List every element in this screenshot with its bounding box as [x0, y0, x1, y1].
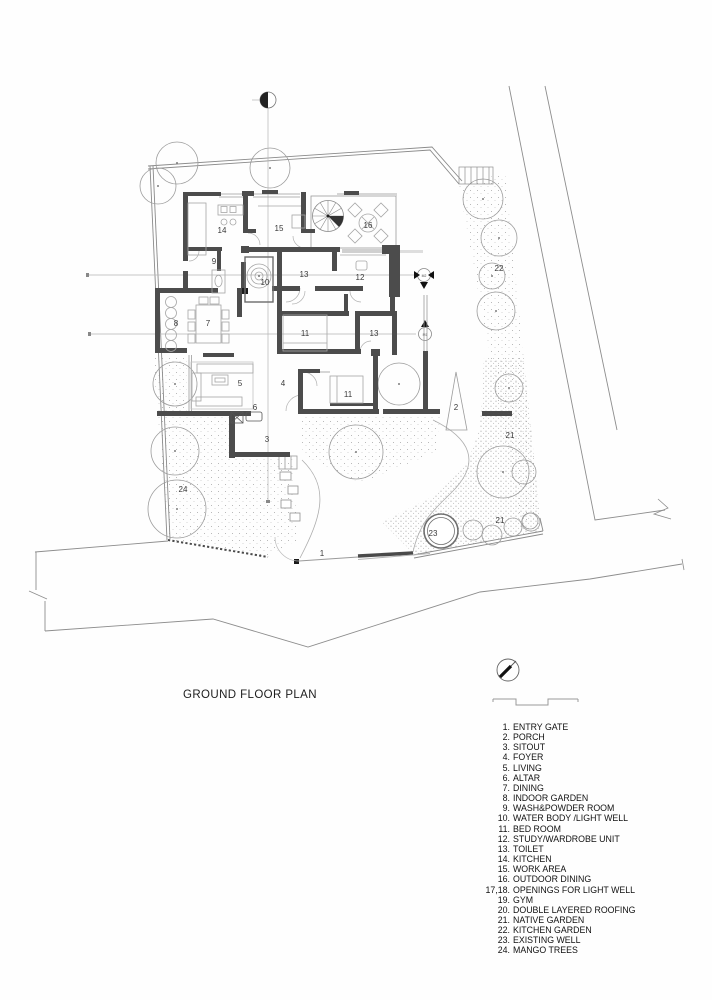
- plan-room-label: 13: [300, 270, 309, 279]
- legend-item: 2.PORCH: [482, 732, 697, 742]
- plan-room-label: 9: [212, 257, 217, 266]
- study-desk: [340, 255, 386, 270]
- legend-item-label: OPENINGS FOR LIGHT WELL: [513, 885, 635, 895]
- legend-item: 6.ALTAR: [482, 773, 697, 783]
- legend-item-number: 24.: [482, 945, 510, 955]
- legend-item-number: 15.: [482, 864, 510, 874]
- legend-item-number: 13.: [482, 844, 510, 854]
- legend-item: 23.EXISTING WELL: [482, 935, 697, 945]
- legend-item: 3.SITOUT: [482, 742, 697, 752]
- marker-m2-label: M2: [422, 274, 427, 278]
- legend-item-label: WATER BODY /LIGHT WELL: [513, 813, 628, 823]
- section-marker-top: [260, 92, 276, 108]
- legend-item: 8.INDOOR GARDEN: [482, 793, 697, 803]
- legend-item-number: 19.: [482, 895, 510, 905]
- north-arrow-icon: [497, 659, 519, 681]
- sofa-set: [191, 362, 253, 409]
- legend-item-number: 20.: [482, 905, 510, 915]
- plan-room-label: 21: [496, 516, 505, 525]
- legend-item-number: 23.: [482, 935, 510, 945]
- plan-room-label: 1: [320, 549, 325, 558]
- drawing-title: GROUND FLOOR PLAN: [183, 689, 317, 701]
- legend-item-number: 22.: [482, 925, 510, 935]
- road-lines: [29, 86, 684, 647]
- plan-room-label: 22: [495, 264, 504, 273]
- legend-item-number: 21.: [482, 915, 510, 925]
- legend-item-label: OUTDOOR DINING: [513, 874, 591, 884]
- drawing-sheet: M2 M1: [0, 0, 712, 1000]
- legend-item-label: ALTAR: [513, 773, 540, 783]
- legend-item: 15.WORK AREA: [482, 864, 697, 874]
- legend-item-label: STUDY/WARDROBE UNIT: [513, 834, 620, 844]
- legend-item: 20.DOUBLE LAYERED ROOFING: [482, 905, 697, 915]
- legend-item: 7.DINING: [482, 783, 697, 793]
- legend-item: 21.NATIVE GARDEN: [482, 915, 697, 925]
- plan-room-label: 12: [356, 273, 365, 282]
- plan-room-label: 11: [344, 390, 353, 399]
- plan-room-label: 10: [261, 278, 270, 287]
- plan-room-label: 15: [275, 224, 284, 233]
- legend-item: 14.KITCHEN: [482, 854, 697, 864]
- plan-room-label: 23: [429, 529, 438, 538]
- legend-item-label: WORK AREA: [513, 864, 566, 874]
- plan-room-label: 16: [364, 221, 373, 230]
- plan-room-label: 2: [454, 403, 459, 412]
- furniture: [166, 201, 389, 424]
- plan-room-label: 11: [301, 329, 310, 338]
- legend-item-number: 11.: [482, 824, 510, 834]
- legend-item-number: 5.: [482, 763, 510, 773]
- section-marker-m1: M1: [419, 320, 432, 341]
- legend-item: 16.OUTDOOR DINING: [482, 874, 697, 884]
- legend-item-label: LIVING: [513, 763, 542, 773]
- legend-item-label: NATIVE GARDEN: [513, 915, 584, 925]
- plan-room-label: 5: [238, 379, 243, 388]
- plan-room-label: 7: [206, 319, 211, 328]
- scale-bar: [493, 699, 578, 705]
- plan-room-label: 24: [179, 485, 188, 494]
- plan-room-label: 3: [265, 435, 270, 444]
- legend-item-label: DINING: [513, 783, 544, 793]
- legend-item-number: 17,18.: [482, 885, 510, 895]
- legend-item-number: 1.: [482, 722, 510, 732]
- legend-item: 4.FOYER: [482, 752, 697, 762]
- legend-item-number: 10.: [482, 813, 510, 823]
- plan-room-label: 13: [370, 329, 379, 338]
- section-marker-m2: M2: [414, 269, 434, 290]
- plan-room-label: 8: [174, 319, 179, 328]
- plan-room-label: 6: [253, 403, 258, 412]
- legend-item-number: 14.: [482, 854, 510, 864]
- legend-item-label: TOILET: [513, 844, 544, 854]
- legend-item-number: 7.: [482, 783, 510, 793]
- legend-item-number: 6.: [482, 773, 510, 783]
- plan-room-label: 21: [506, 431, 515, 440]
- legend-item: 19.GYM: [482, 895, 697, 905]
- legend: 1.ENTRY GATE2.PORCH3.SITOUT4.FOYER5.LIVI…: [482, 722, 697, 956]
- legend-item-label: EXISTING WELL: [513, 935, 580, 945]
- legend-item-number: 2.: [482, 732, 510, 742]
- legend-item-number: 9.: [482, 803, 510, 813]
- legend-item-number: 16.: [482, 874, 510, 884]
- legend-item-label: DOUBLE LAYERED ROOFING: [513, 905, 636, 915]
- legend-item: 10.WATER BODY /LIGHT WELL: [482, 813, 697, 823]
- legend-item-label: ENTRY GATE: [513, 722, 568, 732]
- legend-item-label: SITOUT: [513, 742, 545, 752]
- legend-item: 11.BED ROOM: [482, 824, 697, 834]
- legend-item-label: MANGO TREES: [513, 945, 578, 955]
- ground-texture: [153, 173, 540, 556]
- legend-item-number: 8.: [482, 793, 510, 803]
- legend-item-label: KITCHEN: [513, 854, 552, 864]
- legend-item-label: INDOOR GARDEN: [513, 793, 588, 803]
- legend-item-label: BED ROOM: [513, 824, 561, 834]
- conifer-tree: [446, 372, 467, 430]
- legend-item: 5.LIVING: [482, 763, 697, 773]
- legend-item-label: KITCHEN GARDEN: [513, 925, 592, 935]
- legend-item-label: PORCH: [513, 732, 545, 742]
- legend-item: 17,18.OPENINGS FOR LIGHT WELL: [482, 885, 697, 895]
- legend-item-number: 3.: [482, 742, 510, 752]
- legend-item-number: 12.: [482, 834, 510, 844]
- spiral-stair: [313, 201, 344, 232]
- plan-room-label: 14: [218, 226, 227, 235]
- legend-item: 12.STUDY/WARDROBE UNIT: [482, 834, 697, 844]
- legend-item: 9.WASH&POWDER ROOM: [482, 803, 697, 813]
- legend-item: 1.ENTRY GATE: [482, 722, 697, 732]
- legend-item: 22.KITCHEN GARDEN: [482, 925, 697, 935]
- legend-item-label: WASH&POWDER ROOM: [513, 803, 614, 813]
- legend-item-number: 4.: [482, 752, 510, 762]
- plan-room-label: 4: [281, 379, 286, 388]
- legend-item: 13.TOILET: [482, 844, 697, 854]
- legend-item-label: FOYER: [513, 752, 543, 762]
- legend-item: 24.MANGO TREES: [482, 945, 697, 955]
- legend-item-label: GYM: [513, 895, 533, 905]
